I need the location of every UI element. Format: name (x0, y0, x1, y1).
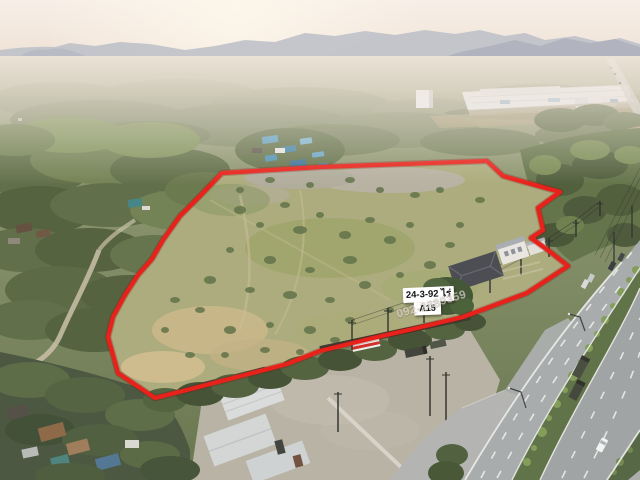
aerial-photo: 24-3-92 ไร่ A15 092-2889359 (0, 0, 640, 480)
warm-tint (0, 0, 640, 480)
scene (0, 0, 640, 480)
